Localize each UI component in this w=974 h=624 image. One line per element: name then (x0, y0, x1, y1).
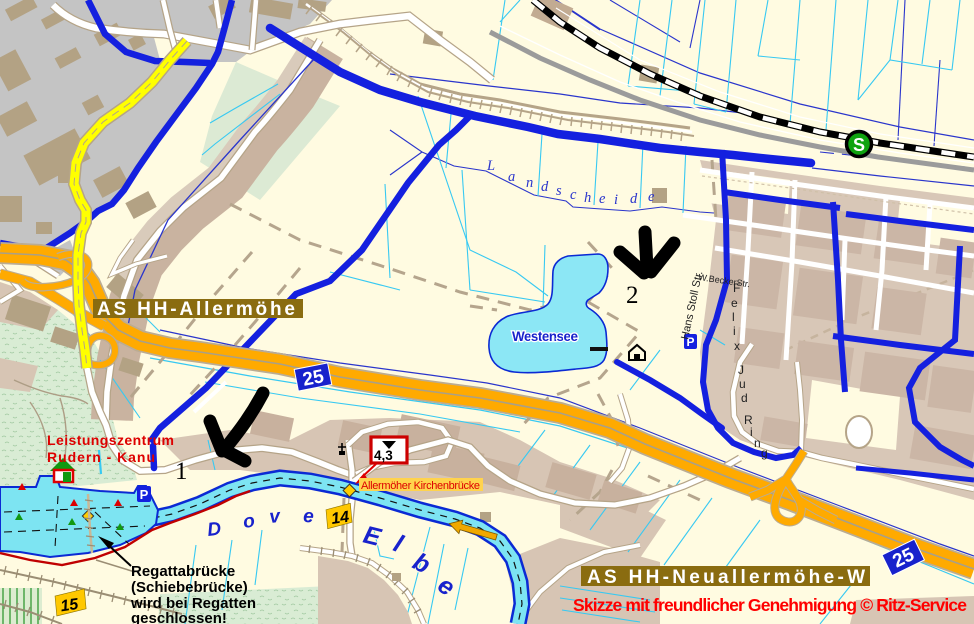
svg-text:i: i (750, 425, 753, 439)
svg-text:(Schiebebrücke): (Schiebebrücke) (131, 579, 248, 596)
svg-text:e: e (648, 189, 655, 205)
svg-text:25: 25 (301, 366, 326, 391)
svg-text:e: e (599, 191, 606, 207)
svg-text:a: a (508, 169, 515, 185)
svg-text:AS HH-Neuallermöhe-W: AS HH-Neuallermöhe-W (587, 567, 865, 588)
svg-text:4,3: 4,3 (374, 448, 393, 463)
svg-text:1: 1 (175, 458, 188, 485)
svg-text:Skizze mit freundlicher Genehm: Skizze mit freundlicher Genehmigung © Ri… (573, 595, 967, 615)
svg-text:P: P (140, 487, 149, 502)
svg-text:Allermöher Kirchenbrücke: Allermöher Kirchenbrücke (361, 480, 480, 492)
svg-text:Westensee: Westensee (512, 329, 578, 344)
svg-text:14: 14 (330, 509, 350, 528)
svg-text:u: u (739, 377, 746, 391)
svg-text:i: i (614, 192, 618, 208)
svg-text:n: n (526, 175, 533, 191)
svg-text:e: e (731, 296, 738, 310)
svg-text:l: l (732, 310, 735, 324)
svg-text:Leistungszentrum: Leistungszentrum (47, 432, 174, 448)
svg-text:L: L (486, 158, 495, 174)
svg-text:Rudern - Kanu: Rudern - Kanu (47, 449, 155, 465)
svg-text:D: D (206, 519, 222, 541)
svg-text:n: n (754, 436, 761, 450)
svg-text:d: d (630, 191, 638, 207)
svg-text:x: x (734, 339, 740, 353)
svg-text:i: i (733, 324, 736, 338)
svg-text:J: J (738, 363, 744, 377)
svg-text:c: c (570, 187, 577, 203)
svg-text:15: 15 (59, 596, 80, 615)
svg-text:2: 2 (626, 282, 639, 309)
svg-text:Regattabrücke: Regattabrücke (131, 563, 235, 580)
svg-text:d: d (541, 179, 549, 195)
svg-text:F: F (733, 281, 740, 295)
svg-text:h: h (584, 190, 591, 206)
svg-text:geschlossen!: geschlossen! (131, 610, 227, 624)
svg-text:g: g (761, 446, 768, 460)
svg-text:d: d (741, 391, 748, 405)
svg-text:s: s (556, 183, 562, 199)
svg-text:S: S (853, 135, 865, 155)
svg-text:e: e (303, 506, 315, 527)
